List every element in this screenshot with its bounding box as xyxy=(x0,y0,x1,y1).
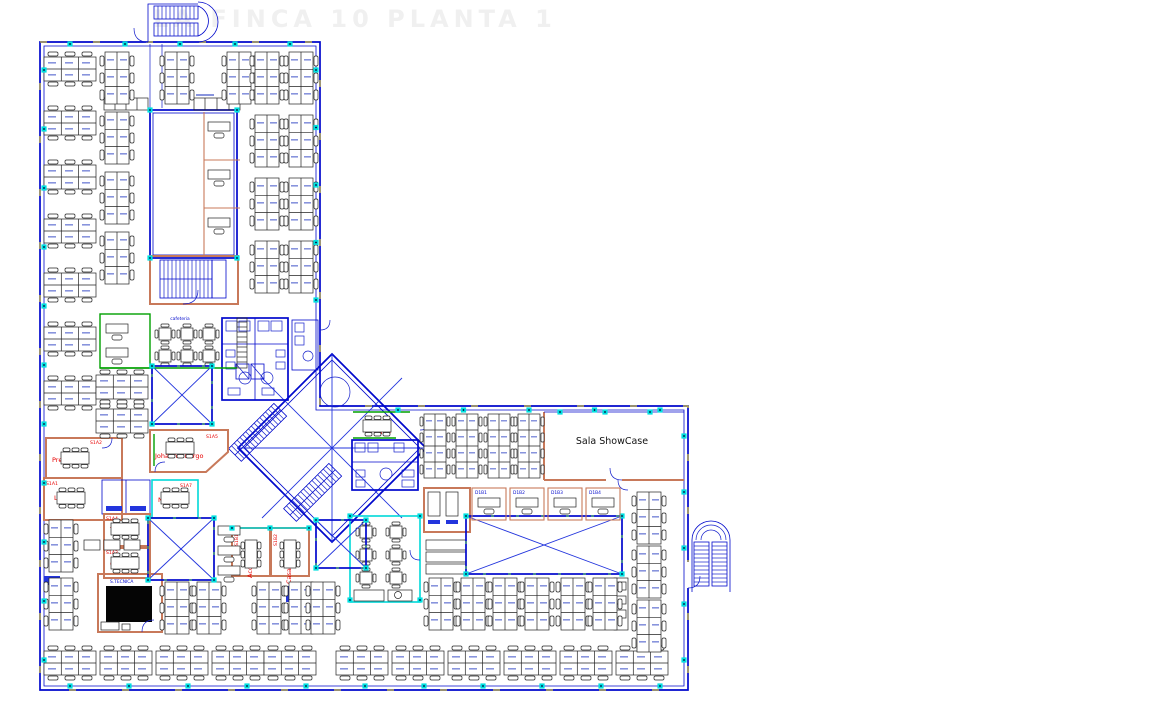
column-marker xyxy=(41,480,46,485)
single-desk xyxy=(106,324,128,340)
locker-strip xyxy=(237,318,247,368)
desk-cluster xyxy=(284,52,318,104)
staircase-internal xyxy=(150,256,238,304)
desk-cluster xyxy=(632,546,666,598)
single-desk xyxy=(592,498,614,514)
column-marker xyxy=(657,407,662,412)
cafe-table xyxy=(386,545,406,565)
desk-cluster xyxy=(392,646,444,680)
desk-cluster xyxy=(448,646,500,680)
desk-cluster xyxy=(264,646,316,680)
cafeteria-label: cafeteria xyxy=(170,316,190,322)
floor-plan-drawing: LA FINCA 10 PLANTA 1 xyxy=(0,0,1152,713)
bench-cluster xyxy=(484,414,514,478)
restroom-core-upper xyxy=(222,318,288,400)
desk-cluster xyxy=(44,520,78,572)
svg-text:S1A2: S1A2 xyxy=(90,440,102,446)
door-arcs xyxy=(155,320,628,490)
storage-rooms xyxy=(424,488,470,574)
single-desk xyxy=(208,170,230,186)
desk-cluster xyxy=(632,600,666,652)
booth-label: D1B1 xyxy=(475,490,487,496)
cafe-table xyxy=(386,568,406,588)
desk-cluster xyxy=(306,582,340,634)
column-marker xyxy=(232,41,237,46)
column-marker xyxy=(313,182,318,187)
desk-cluster xyxy=(96,370,148,404)
cafe-table xyxy=(199,324,219,344)
desk-cluster xyxy=(96,404,148,438)
desk-cluster xyxy=(100,232,134,284)
desk-cluster xyxy=(250,115,284,167)
desk-cluster xyxy=(250,52,284,104)
column-marker xyxy=(681,657,686,662)
floor-void xyxy=(152,366,212,424)
column-marker xyxy=(244,683,249,688)
desk-cluster xyxy=(284,241,318,293)
column-marker xyxy=(647,409,652,414)
column-marker xyxy=(209,363,214,368)
column-marker xyxy=(363,565,368,570)
cafe-table xyxy=(386,522,406,542)
column-marker xyxy=(41,244,46,249)
desk-cluster xyxy=(100,52,134,104)
column-marker xyxy=(41,598,46,603)
single-desk xyxy=(554,498,576,514)
column-marker xyxy=(126,683,131,688)
column-marker xyxy=(41,539,46,544)
column-marker xyxy=(557,409,562,414)
single-desk xyxy=(516,498,538,514)
cafe-table xyxy=(177,346,197,366)
column-marker xyxy=(681,601,686,606)
desk-cluster xyxy=(284,178,318,230)
single-desk xyxy=(208,122,230,138)
restroom-core-mini xyxy=(292,320,318,370)
meeting-table xyxy=(280,540,300,568)
column-marker xyxy=(362,683,367,688)
meeting-table xyxy=(61,448,89,468)
single-desk xyxy=(218,566,240,582)
room-tecnica: S.TECNICA xyxy=(98,574,162,632)
column-marker xyxy=(463,513,468,518)
floor-plan-canvas: LA FINCA 10 PLANTA 1 xyxy=(0,0,1152,713)
floor-void xyxy=(148,518,214,580)
column-marker xyxy=(657,683,662,688)
svg-text:S.TECNICA: S.TECNICA xyxy=(110,579,133,585)
column-marker xyxy=(306,525,311,530)
copier-row xyxy=(84,540,140,550)
desk-cluster xyxy=(44,106,96,140)
column-marker xyxy=(417,597,422,602)
column-marker xyxy=(67,41,72,46)
cafe-table xyxy=(177,324,197,344)
column-marker xyxy=(681,489,686,494)
column-marker xyxy=(619,571,624,576)
desk-cluster xyxy=(252,582,286,634)
desk-cluster xyxy=(100,172,134,224)
svg-text:S1A1: S1A1 xyxy=(46,481,58,487)
elevator-block xyxy=(236,364,264,379)
column-marker xyxy=(229,525,234,530)
booth-label: D1B4 xyxy=(589,490,601,496)
column-marker xyxy=(147,255,152,260)
desk-cluster xyxy=(456,578,490,630)
atrium-escalators xyxy=(229,354,426,542)
column-marker xyxy=(287,41,292,46)
desk-cluster xyxy=(560,646,612,680)
phone-booth-pair xyxy=(102,480,150,514)
single-desk xyxy=(218,546,240,562)
column-marker xyxy=(480,683,485,688)
column-marker xyxy=(41,421,46,426)
column-marker xyxy=(122,41,127,46)
column-marker xyxy=(209,421,214,426)
cafe-table xyxy=(356,568,376,588)
svg-text:S1B2: S1B2 xyxy=(273,534,279,546)
column-marker xyxy=(539,683,544,688)
column-marker xyxy=(234,255,239,260)
room-showcase: Sala ShowCase xyxy=(544,412,684,483)
column-marker xyxy=(313,125,318,130)
desk-cluster xyxy=(588,578,622,630)
desk-cluster xyxy=(44,268,96,302)
desk-cluster xyxy=(100,112,134,164)
bench-cluster xyxy=(452,414,482,478)
column-marker xyxy=(211,515,216,520)
column-marker xyxy=(67,683,72,688)
column-marker xyxy=(211,577,216,582)
column-marker xyxy=(681,433,686,438)
desk-cluster xyxy=(250,178,284,230)
desk-cluster xyxy=(250,241,284,293)
column-marker xyxy=(41,303,46,308)
desk-cluster xyxy=(160,582,194,634)
desk-cluster xyxy=(44,376,96,410)
column-marker xyxy=(461,407,466,412)
desk-cluster xyxy=(192,582,226,634)
column-marker xyxy=(267,525,272,530)
desk-cluster xyxy=(100,646,152,680)
column-marker xyxy=(185,683,190,688)
meeting-table xyxy=(111,519,139,539)
desk-cluster xyxy=(556,578,590,630)
column-marker xyxy=(313,240,318,245)
column-marker xyxy=(313,565,318,570)
single-desk xyxy=(106,348,128,364)
meeting-table xyxy=(363,416,391,436)
desk-cluster xyxy=(488,578,522,630)
column-marker xyxy=(41,67,46,72)
meeting-table xyxy=(57,488,85,508)
column-marker xyxy=(395,407,400,412)
svg-text:S1B1: S1B1 xyxy=(234,534,240,546)
column-marker xyxy=(145,515,150,520)
column-marker xyxy=(421,683,426,688)
desk-cluster xyxy=(44,214,96,248)
column-marker xyxy=(145,577,150,582)
floor-void xyxy=(466,516,622,574)
desk-cluster xyxy=(504,646,556,680)
column-marker xyxy=(313,517,318,522)
column-marker xyxy=(234,107,239,112)
column-marker xyxy=(147,107,152,112)
column-marker xyxy=(313,297,318,302)
column-marker xyxy=(363,517,368,522)
column-marker xyxy=(41,126,46,131)
desk-cluster xyxy=(424,578,458,630)
column-marker xyxy=(602,409,607,414)
meeting-table xyxy=(111,553,139,573)
column-marker xyxy=(598,683,603,688)
desk-cluster xyxy=(44,322,96,356)
booth-label: D1B2 xyxy=(513,490,525,496)
desk-cluster xyxy=(336,646,388,680)
desk-cluster xyxy=(156,646,208,680)
desk-cluster xyxy=(44,646,96,680)
column-marker xyxy=(526,407,531,412)
column-marker xyxy=(592,407,597,412)
svg-text:S1A5: S1A5 xyxy=(206,434,218,440)
booth-label: D1B3 xyxy=(551,490,563,496)
cafe-table xyxy=(199,346,219,366)
meeting-table xyxy=(161,488,189,508)
column-marker xyxy=(347,513,352,518)
column-marker xyxy=(303,683,308,688)
desk-cluster xyxy=(160,52,194,104)
single-desk xyxy=(208,218,230,234)
showcase-label: Sala ShowCase xyxy=(576,436,648,447)
desk-cluster xyxy=(284,115,318,167)
desk-cluster xyxy=(44,578,78,630)
meeting-table xyxy=(241,540,261,568)
bench-cluster xyxy=(420,414,450,478)
column-marker xyxy=(41,362,46,367)
cafe-table xyxy=(155,324,175,344)
column-marker xyxy=(41,185,46,190)
desk-cluster xyxy=(520,578,554,630)
column-marker xyxy=(463,571,468,576)
column-marker xyxy=(681,545,686,550)
desk-cluster xyxy=(632,492,666,544)
desk-cluster xyxy=(44,160,96,194)
column-marker xyxy=(417,513,422,518)
bench-cluster xyxy=(514,414,544,478)
column-marker xyxy=(313,67,318,72)
desk-cluster xyxy=(212,646,264,680)
column-marker xyxy=(149,421,154,426)
staircase-east xyxy=(685,521,730,592)
column-marker xyxy=(177,41,182,46)
cafe-table xyxy=(155,346,175,366)
column-marker xyxy=(149,363,154,368)
furniture-layer xyxy=(44,52,668,680)
single-desk xyxy=(478,498,500,514)
column-marker xyxy=(41,657,46,662)
meeting-table xyxy=(166,438,194,458)
column-marker xyxy=(347,597,352,602)
desk-cluster xyxy=(44,52,96,86)
